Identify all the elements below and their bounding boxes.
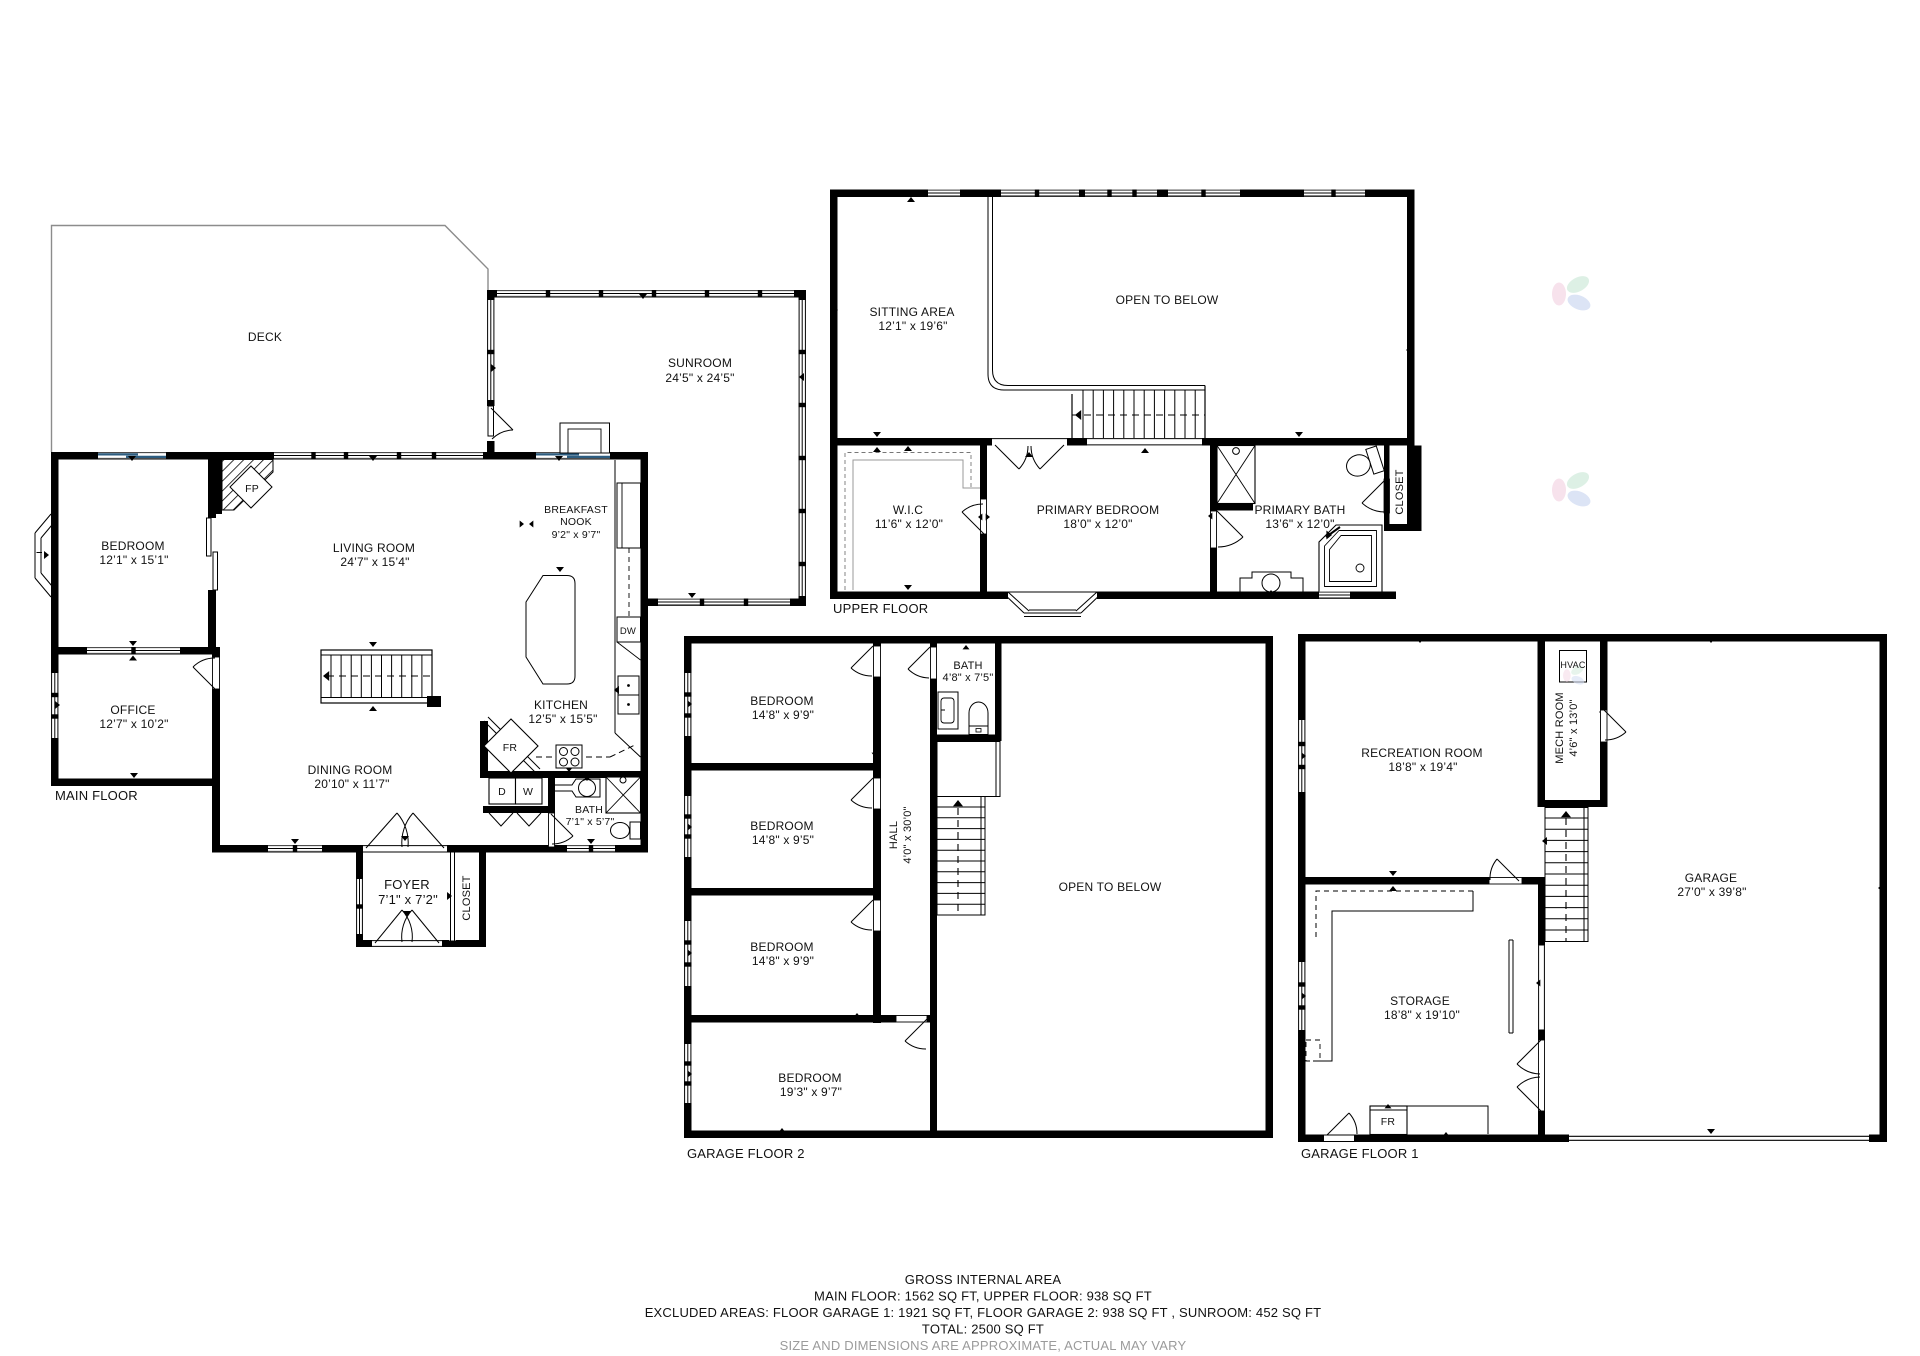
svg-text:UPPER FLOOR: UPPER FLOOR xyxy=(833,601,928,616)
svg-text:24’7" x 15’4": 24’7" x 15’4" xyxy=(340,555,409,569)
svg-text:HALL: HALL xyxy=(888,821,900,849)
svg-text:D: D xyxy=(498,786,506,798)
svg-text:FR: FR xyxy=(503,742,518,754)
svg-text:20’10" x 11’7": 20’10" x 11’7" xyxy=(314,777,389,791)
svg-text:BEDROOM: BEDROOM xyxy=(750,694,813,708)
svg-text:12’1" x 15’1": 12’1" x 15’1" xyxy=(99,553,168,567)
svg-text:BATH: BATH xyxy=(575,804,603,816)
svg-text:7’1" x 7’2": 7’1" x 7’2" xyxy=(378,892,438,907)
svg-text:GARAGE: GARAGE xyxy=(1685,871,1738,885)
svg-text:PRIMARY BATH: PRIMARY BATH xyxy=(1254,503,1345,517)
svg-text:RECREATION ROOM: RECREATION ROOM xyxy=(1361,746,1482,760)
svg-text:14’8" x 9’5": 14’8" x 9’5" xyxy=(752,833,814,847)
svg-text:4’8" x 7’5": 4’8" x 7’5" xyxy=(943,672,994,684)
svg-text:12’7" x 10’2": 12’7" x 10’2" xyxy=(99,717,168,731)
svg-text:18’8" x 19’10": 18’8" x 19’10" xyxy=(1384,1008,1460,1022)
svg-text:DECK: DECK xyxy=(248,330,282,344)
svg-text:KITCHEN: KITCHEN xyxy=(534,698,588,712)
svg-text:24’5" x 24’5": 24’5" x 24’5" xyxy=(665,371,734,385)
svg-text:FP: FP xyxy=(245,483,259,495)
svg-text:SUNROOM: SUNROOM xyxy=(668,356,732,370)
svg-text:4’0" x 30’0": 4’0" x 30’0" xyxy=(902,806,914,863)
svg-text:GARAGE FLOOR 1: GARAGE FLOOR 1 xyxy=(1301,1146,1419,1161)
svg-text:LIVING ROOM: LIVING ROOM xyxy=(333,541,415,555)
svg-text:11’6" x 12’0": 11’6" x 12’0" xyxy=(875,517,943,531)
svg-text:FR: FR xyxy=(1381,1116,1396,1128)
svg-text:HVAC: HVAC xyxy=(1560,660,1585,670)
svg-text:BEDROOM: BEDROOM xyxy=(750,819,813,833)
svg-text:MECH ROOM: MECH ROOM xyxy=(1554,692,1566,763)
svg-text:13’6" x 12’0": 13’6" x 12’0" xyxy=(1265,517,1334,531)
svg-text:CLOSET: CLOSET xyxy=(461,875,473,920)
svg-text:18’8" x 19’4": 18’8" x 19’4" xyxy=(1388,760,1457,774)
svg-text:TOTAL: 2500 SQ FT: TOTAL: 2500 SQ FT xyxy=(922,1322,1044,1337)
svg-text:9’2" x 9’7": 9’2" x 9’7" xyxy=(552,529,601,541)
svg-text:12’5" x 15’5": 12’5" x 15’5" xyxy=(528,712,597,726)
svg-text:CLOSET: CLOSET xyxy=(1394,469,1406,514)
svg-text:DINING ROOM: DINING ROOM xyxy=(308,763,393,777)
svg-text:GARAGE FLOOR 2: GARAGE FLOOR 2 xyxy=(687,1146,805,1161)
svg-text:MAIN FLOOR: MAIN FLOOR xyxy=(55,788,138,803)
svg-text:NOOK: NOOK xyxy=(560,516,592,528)
svg-text:27’0" x 39’8": 27’0" x 39’8" xyxy=(1677,885,1746,899)
svg-text:MAIN FLOOR: 1562 SQ FT, UPPER: MAIN FLOOR: 1562 SQ FT, UPPER FLOOR: 938… xyxy=(814,1289,1152,1304)
svg-text:W: W xyxy=(523,786,533,798)
svg-text:BEDROOM: BEDROOM xyxy=(778,1071,841,1085)
svg-text:12’1" x 19’6": 12’1" x 19’6" xyxy=(878,319,947,333)
svg-text:DW: DW xyxy=(620,626,636,637)
svg-text:18’0" x 12’0": 18’0" x 12’0" xyxy=(1063,517,1132,531)
svg-text:BREAKFAST: BREAKFAST xyxy=(544,504,608,516)
svg-text:PRIMARY BEDROOM: PRIMARY BEDROOM xyxy=(1037,503,1160,517)
svg-text:SITTING AREA: SITTING AREA xyxy=(869,305,954,319)
svg-text:OPEN TO BELOW: OPEN TO BELOW xyxy=(1059,880,1162,894)
svg-text:BEDROOM: BEDROOM xyxy=(101,539,164,553)
svg-text:14’8" x 9’9": 14’8" x 9’9" xyxy=(752,708,814,722)
svg-text:STORAGE: STORAGE xyxy=(1390,994,1450,1008)
svg-text:14’8" x 9’9": 14’8" x 9’9" xyxy=(752,954,814,968)
svg-text:SIZE AND DIMENSIONS ARE APPROX: SIZE AND DIMENSIONS ARE APPROXIMATE, ACT… xyxy=(780,1338,1187,1353)
svg-text:OPEN TO BELOW: OPEN TO BELOW xyxy=(1116,293,1219,307)
svg-text:OFFICE: OFFICE xyxy=(110,703,155,717)
svg-text:W.I.C: W.I.C xyxy=(893,503,923,517)
svg-text:FOYER: FOYER xyxy=(384,877,430,892)
svg-text:BEDROOM: BEDROOM xyxy=(750,940,813,954)
svg-text:BATH: BATH xyxy=(953,660,982,672)
svg-text:19’3" x 9’7": 19’3" x 9’7" xyxy=(780,1085,842,1099)
svg-text:EXCLUDED AREAS: FLOOR GARAGE 1: EXCLUDED AREAS: FLOOR GARAGE 1: 1921 SQ … xyxy=(645,1305,1322,1320)
svg-text:GROSS INTERNAL AREA: GROSS INTERNAL AREA xyxy=(905,1272,1062,1287)
svg-text:7’1" x 5’7": 7’1" x 5’7" xyxy=(566,816,615,828)
svg-text:4’6" x 13’0": 4’6" x 13’0" xyxy=(1568,699,1580,756)
